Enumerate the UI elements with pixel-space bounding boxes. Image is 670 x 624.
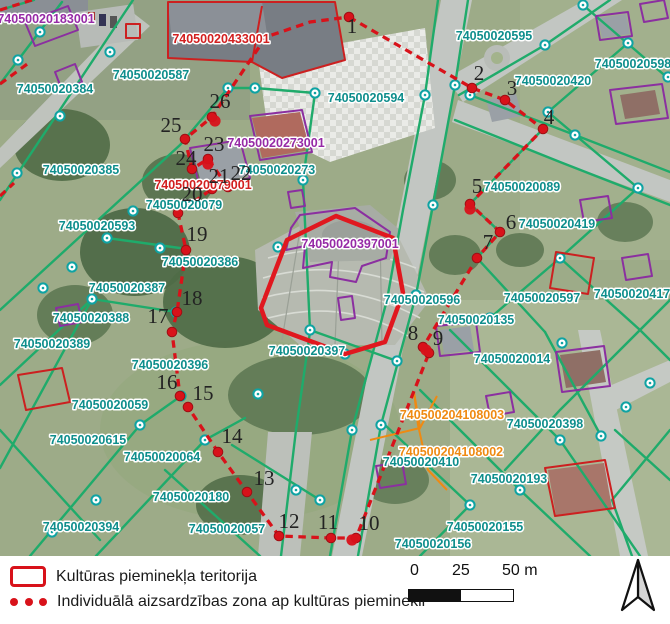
zone-vertex-dot (183, 402, 193, 412)
parcel-label: 74050020594 (328, 91, 405, 105)
parcel-label: 74050020059 (72, 398, 149, 412)
zone-vertex-number: 23 (204, 132, 225, 156)
parcel-label: 74050020410 (383, 455, 460, 469)
parcel-label: 74050020419 (519, 217, 596, 231)
legend-item-monument-area: Kultūras pieminekļa teritorija (10, 566, 257, 587)
parcel-label: 74050020597 (504, 291, 581, 305)
zone-vertex-number: 16 (157, 370, 178, 394)
parcel-label: 74050020014 (474, 352, 551, 366)
zone-vertex-number: 12 (279, 509, 300, 533)
parcel-label: 74050020433001 (172, 32, 269, 46)
zone-vertex-number: 8 (408, 321, 419, 345)
zone-vertex-number: 10 (359, 511, 380, 535)
zone-vertex-number: 24 (176, 146, 198, 170)
parcel-label: 74050020615 (50, 433, 127, 447)
zone-vertex-number: 3 (507, 76, 518, 100)
scale-bar: 0 25 50 m (408, 562, 538, 602)
parcel-label: 74050020386 (162, 255, 239, 269)
map-document: 7405002018300174050020433001740500205877… (0, 0, 670, 624)
map-canvas[interactable]: 7405002018300174050020433001740500205877… (0, 0, 670, 556)
zone-vertex-number: 1 (347, 14, 358, 38)
zone-vertex-number: 9 (433, 326, 444, 350)
parcel-label: 74050020384 (17, 82, 94, 96)
parcel-label: 74050020397 (269, 344, 346, 358)
scale-bar-graphic (408, 589, 514, 602)
parcel-label: 74050020420 (515, 74, 592, 88)
zone-vertex-dot (181, 245, 191, 255)
zone-vertex-dot (167, 327, 177, 337)
parcel-label: 74050020385 (43, 163, 120, 177)
legend-label-protection-zone: Individuālā aizsardzības zona ap kultūra… (57, 593, 425, 611)
zone-vertex-number: 22 (231, 161, 252, 185)
parcel-label: 74050020595 (456, 29, 533, 43)
zone-vertex-number: 26 (210, 89, 231, 113)
legend-item-protection-zone: Individuālā aizsardzības zona ap kultūra… (10, 593, 425, 611)
zone-vertex-dot (213, 447, 223, 457)
parcel-label: 74050020193 (471, 472, 548, 486)
zone-vertex-number: 25 (161, 113, 182, 137)
zone-vertex-dot (495, 227, 505, 237)
zone-vertex-number: 7 (483, 230, 494, 254)
parcel-label: 74050020397001 (301, 237, 398, 251)
parcel-label: 74050020398 (507, 417, 584, 431)
scale-bar-ticks: 0 25 50 m (408, 562, 538, 582)
red-roof-house (252, 112, 310, 158)
parcel-label: 74050020387 (89, 281, 166, 295)
zone-vertex-number: 20 (182, 182, 203, 206)
parcel-label: 74050020155 (447, 520, 524, 534)
zone-vertex-number: 18 (182, 286, 203, 310)
parcel-label: 74050020064 (124, 450, 201, 464)
monument-area-swatch-icon (10, 566, 46, 587)
zone-vertex-number: 11 (318, 510, 338, 534)
zone-vertex-dot (242, 487, 252, 497)
zone-vertex-number: 17 (148, 304, 169, 328)
zone-vertex-dot (180, 134, 190, 144)
zone-vertex-number: 4 (544, 105, 555, 129)
zone-vertex-number: 5 (472, 174, 483, 198)
scale-tick-50m: 50 m (502, 562, 538, 580)
parcel-label: 74050020156 (395, 537, 472, 551)
zone-vertex-number: 6 (506, 210, 517, 234)
parcel-label: 74050020057 (189, 522, 266, 536)
zone-vertex-number: 15 (193, 381, 214, 405)
parcel-label: 74050020596 (384, 293, 461, 307)
scale-tick-25: 25 (452, 562, 470, 580)
zone-vertex-dot (472, 253, 482, 263)
parcel-label: 74050020417 (594, 287, 670, 301)
parcel-label: 74050020587 (113, 68, 190, 82)
legend: Kultūras pieminekļa teritorija Individuā… (0, 556, 670, 624)
parcel-label: 74050020183001 (0, 12, 95, 26)
north-arrow-icon (612, 556, 664, 618)
parcel-label: 74050020273001 (227, 136, 324, 150)
parcel-label: 74050020389 (14, 337, 91, 351)
parcel-label: 74050020089 (484, 180, 561, 194)
parcel-label: 74050020180 (153, 490, 230, 504)
protection-zone-swatch-icon (10, 598, 47, 606)
zone-vertex-number: 13 (254, 466, 275, 490)
parcel-label: 74050020598 (595, 57, 670, 71)
zone-vertex-number: 2 (474, 61, 485, 85)
zone-vertex-dot (172, 307, 182, 317)
legend-label-monument-area: Kultūras pieminekļa teritorija (56, 568, 257, 586)
parcel-label: 74050020388 (53, 311, 130, 325)
parcel-label: 740500204108003 (400, 408, 504, 422)
scale-tick-0: 0 (410, 562, 419, 580)
parcel-label: 74050020593 (59, 219, 136, 233)
zone-vertex-number: 19 (187, 222, 208, 246)
zone-vertex-number: 14 (222, 424, 244, 448)
parcel-label: 74050020394 (43, 520, 120, 534)
parcel-label: 74050020135 (438, 313, 515, 327)
zone-vertex-dot (326, 533, 336, 543)
zone-vertex-number: 21 (209, 164, 230, 188)
